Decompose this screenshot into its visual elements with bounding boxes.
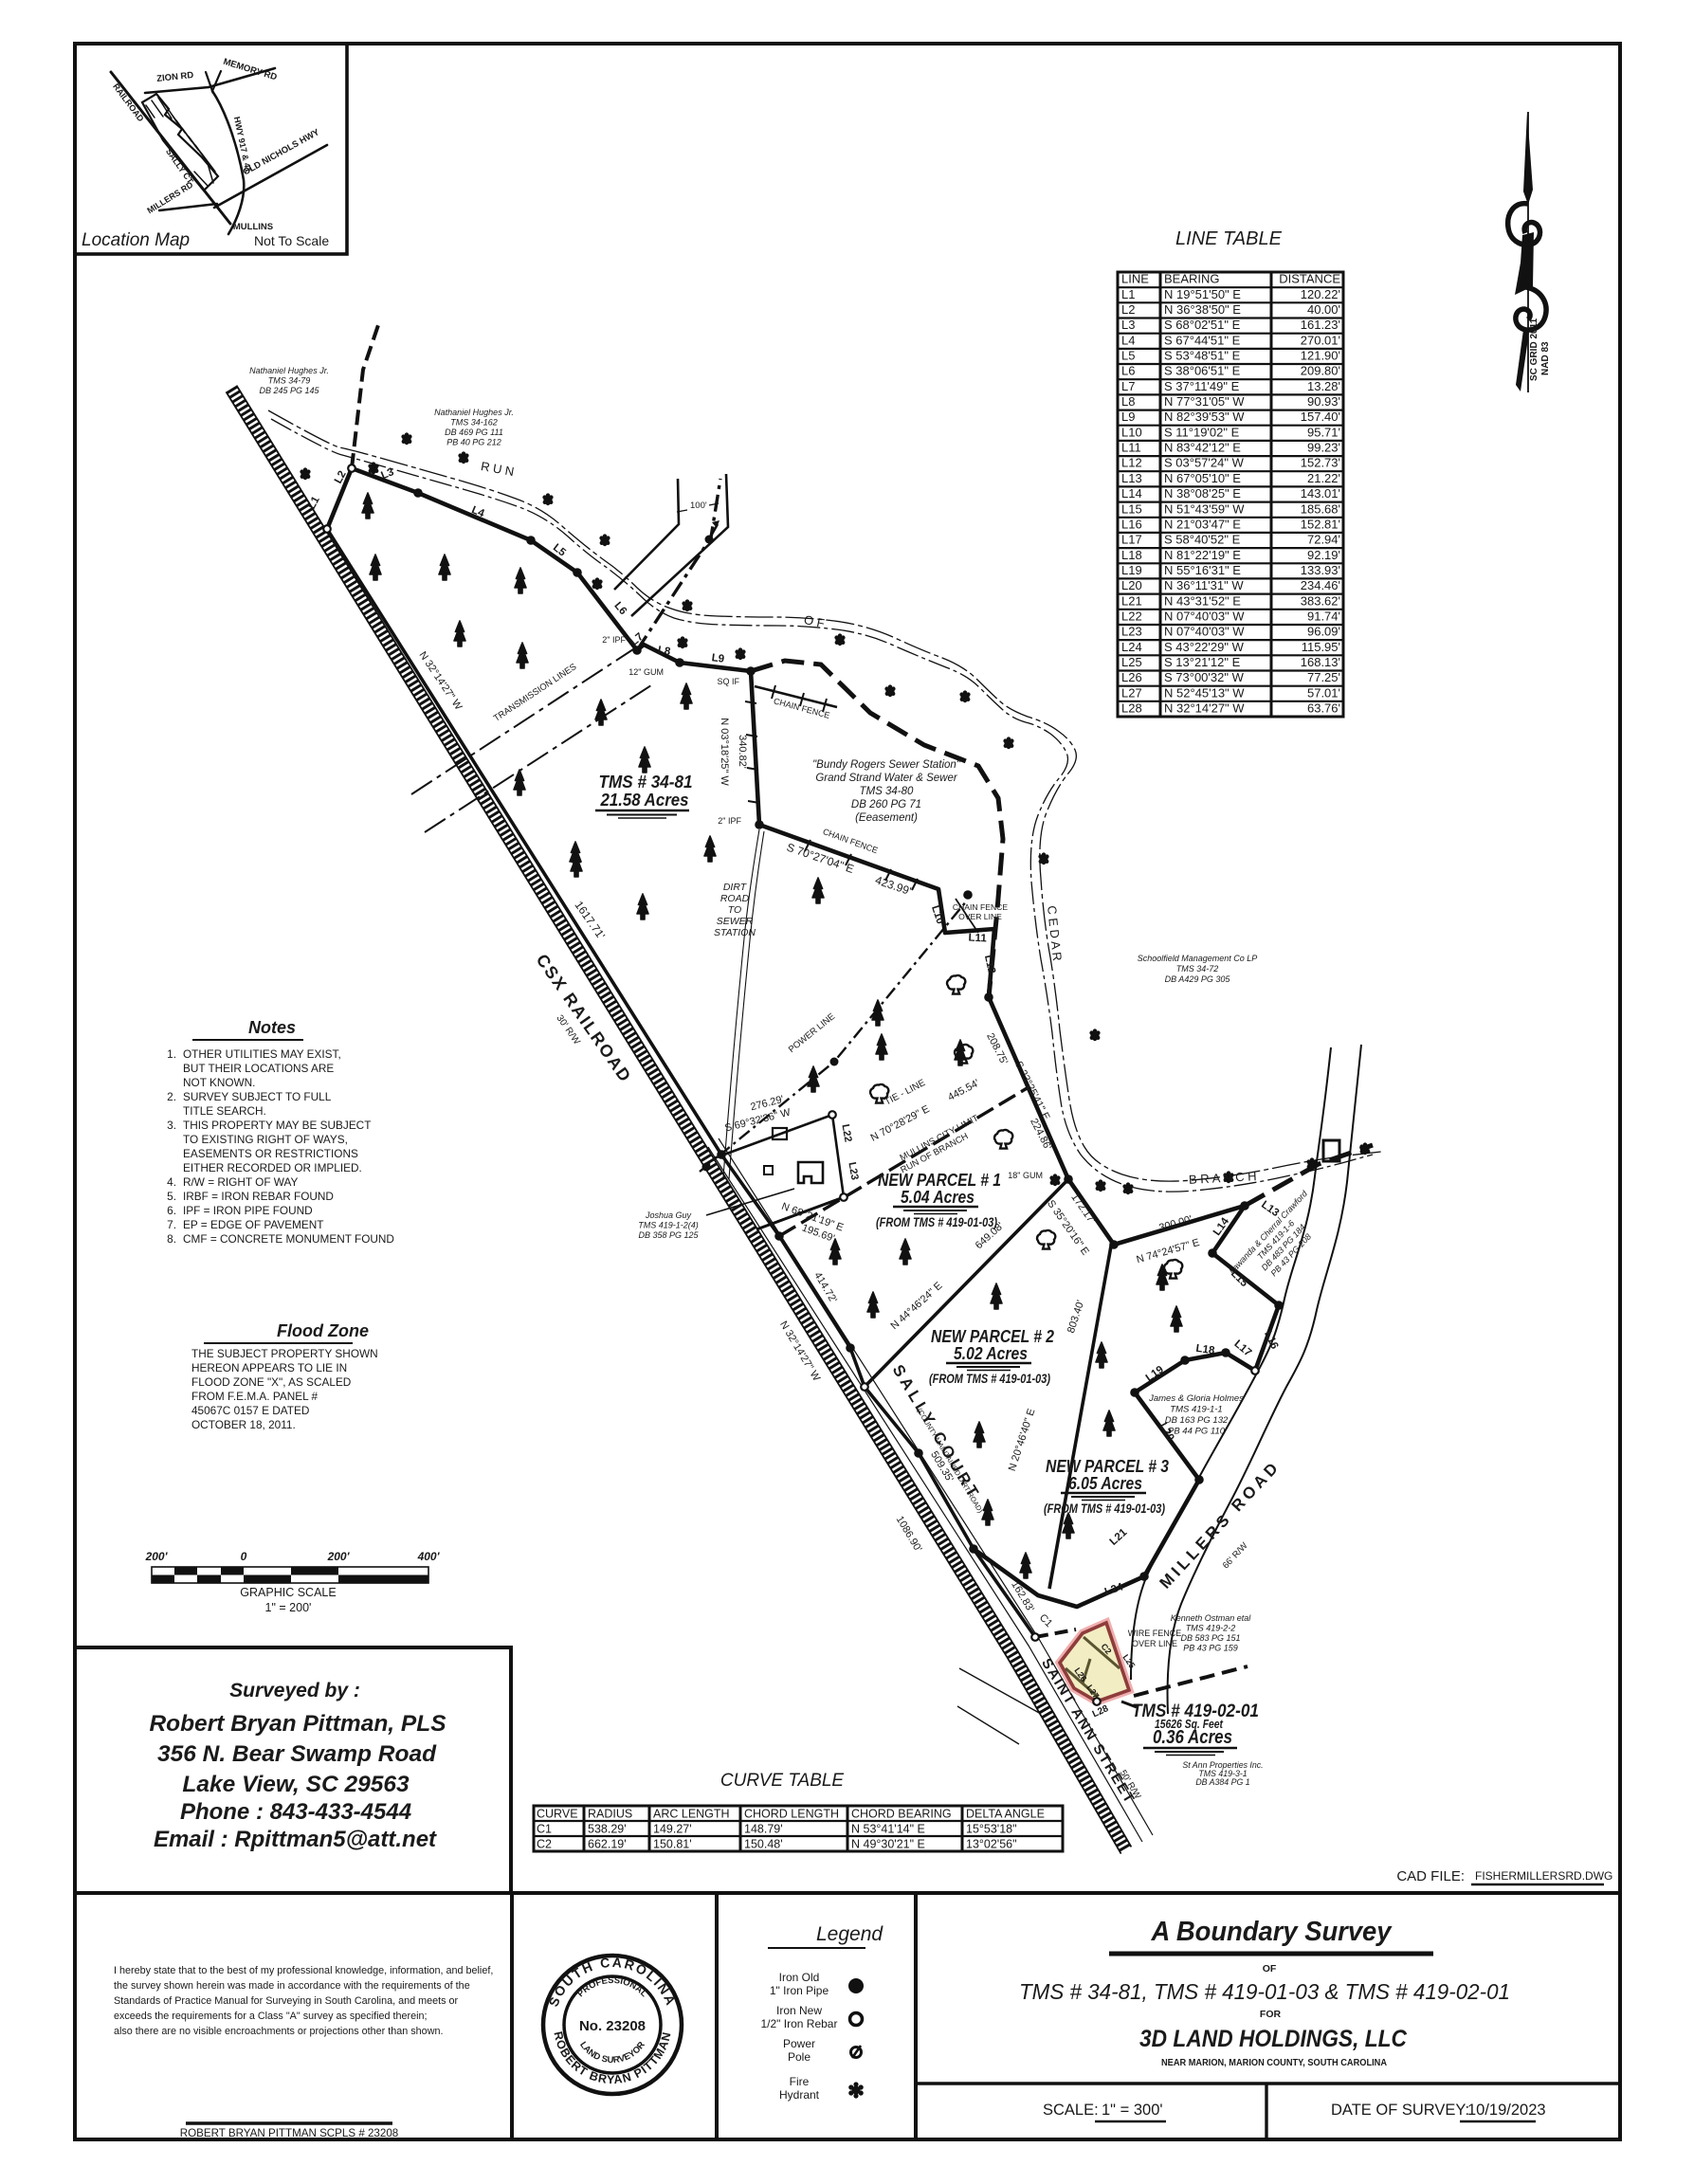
- svg-text:209.80': 209.80': [1301, 364, 1340, 378]
- svg-text:N 07°40'03" W: N 07°40'03" W: [1164, 625, 1245, 639]
- svg-text:MULLINS: MULLINS: [233, 222, 273, 232]
- svg-text:Power: Power: [783, 2037, 815, 2050]
- svg-text:CMF = CONCRETE MONUMENT FOUND: CMF = CONCRETE MONUMENT FOUND: [183, 1232, 394, 1246]
- svg-text:21.58 Acres: 21.58 Acres: [600, 790, 689, 810]
- svg-text:SURVEY SUBJECT TO FULL: SURVEY SUBJECT TO FULL: [183, 1090, 332, 1103]
- svg-text:45067C 0157 E DATED: 45067C 0157 E DATED: [191, 1404, 309, 1417]
- svg-text:Phone : 843-433-4544: Phone : 843-433-4544: [180, 1799, 411, 1825]
- svg-text:3D LAND HOLDINGS, LLC: 3D LAND HOLDINGS, LLC: [1139, 2026, 1408, 2052]
- svg-text:I hereby state that to the bes: I hereby state that to the best of my pr…: [114, 1965, 493, 1976]
- svg-text:SCALE:: SCALE:: [1043, 2102, 1099, 2119]
- svg-text:(Eeasement): (Eeasement): [855, 812, 918, 824]
- svg-text:Grand Strand Water & Sewer: Grand Strand Water & Sewer: [815, 773, 958, 784]
- svg-text:Joshua Guy: Joshua Guy: [645, 1210, 692, 1220]
- svg-text:Not To Scale: Not To Scale: [254, 233, 329, 248]
- svg-text:1" = 200': 1" = 200': [265, 1601, 312, 1614]
- svg-text:DB 583 PG 151: DB 583 PG 151: [1180, 1633, 1240, 1643]
- svg-text:18" GUM: 18" GUM: [1008, 1171, 1043, 1180]
- svg-text:2.: 2.: [167, 1090, 176, 1103]
- svg-text:SEWER: SEWER: [717, 916, 754, 927]
- svg-text:143.01': 143.01': [1301, 486, 1340, 500]
- svg-text:538.29': 538.29': [588, 1823, 627, 1836]
- svg-text:L24: L24: [1121, 640, 1142, 654]
- svg-text:8.: 8.: [167, 1232, 176, 1246]
- svg-text:TO EXISTING RIGHT OF WAYS,: TO EXISTING RIGHT OF WAYS,: [183, 1133, 348, 1146]
- svg-text:PB 44 PG 110: PB 44 PG 110: [1168, 1427, 1226, 1437]
- svg-text:S 37°11'49" E: S 37°11'49" E: [1164, 379, 1240, 393]
- svg-text:LINE: LINE: [1121, 272, 1149, 286]
- svg-text:234.46': 234.46': [1301, 578, 1340, 592]
- svg-text:N 49°30'21" E: N 49°30'21" E: [851, 1838, 925, 1851]
- svg-text:No. 23208: No. 23208: [579, 2018, 646, 2034]
- svg-text:57.01': 57.01': [1307, 685, 1340, 700]
- svg-text:N 81°22'19" E: N 81°22'19" E: [1164, 548, 1241, 562]
- svg-text:185.68': 185.68': [1301, 501, 1340, 516]
- svg-text:Lake View, SC 29563: Lake View, SC 29563: [182, 1772, 410, 1797]
- svg-text:S 73°00'32" W: S 73°00'32" W: [1164, 670, 1245, 684]
- svg-text:L7: L7: [1121, 379, 1135, 393]
- svg-text:FLOOD ZONE "X", AS SCALED: FLOOD ZONE "X", AS SCALED: [191, 1375, 351, 1389]
- svg-text:Fire: Fire: [790, 2075, 810, 2088]
- svg-text:150.48': 150.48': [744, 1838, 783, 1851]
- svg-text:CURVE: CURVE: [537, 1808, 578, 1821]
- svg-text:James & Gloria Holmes: James & Gloria Holmes: [1148, 1393, 1244, 1404]
- svg-text:200': 200': [145, 1550, 169, 1563]
- svg-text:BEARING: BEARING: [1164, 272, 1220, 286]
- svg-text:(FROM TMS # 419-01-03): (FROM TMS # 419-01-03): [876, 1214, 997, 1229]
- svg-text:Nathaniel Hughes Jr.: Nathaniel Hughes Jr.: [434, 408, 514, 417]
- svg-text:L9: L9: [1121, 409, 1135, 424]
- svg-text:161.23': 161.23': [1301, 318, 1340, 332]
- svg-text:N 43°31'52" E: N 43°31'52" E: [1164, 593, 1241, 608]
- svg-text:CHORD LENGTH: CHORD LENGTH: [744, 1808, 839, 1821]
- svg-text:L10: L10: [1121, 425, 1142, 439]
- svg-text:ROBERT BRYAN PITTMAN SCPLS # 2: ROBERT BRYAN PITTMAN SCPLS # 23208: [180, 2127, 398, 2139]
- svg-text:CHORD BEARING: CHORD BEARING: [851, 1808, 952, 1821]
- svg-text:L13: L13: [1121, 471, 1142, 485]
- svg-text:0: 0: [241, 1550, 247, 1563]
- svg-text:12" GUM: 12" GUM: [628, 667, 664, 677]
- svg-text:CAD FILE:: CAD FILE:: [1396, 1868, 1465, 1884]
- svg-text:TMS 419-1-2(4): TMS 419-1-2(4): [638, 1221, 699, 1230]
- svg-text:DB 469 PG 111: DB 469 PG 111: [445, 428, 503, 437]
- svg-text:168.13': 168.13': [1301, 655, 1340, 669]
- svg-text:exceeds the requirements for a: exceeds the requirements for a Class "A"…: [114, 2011, 428, 2022]
- svg-text:4.: 4.: [167, 1175, 176, 1189]
- svg-text:10/19/2023: 10/19/2023: [1467, 2102, 1546, 2119]
- svg-text:DB 163 PG 132: DB 163 PG 132: [1165, 1415, 1229, 1426]
- svg-text:N 36°11'31" W: N 36°11'31" W: [1164, 578, 1244, 592]
- svg-text:TMS 419-1-1: TMS 419-1-1: [1170, 1405, 1222, 1415]
- svg-text:the survey shown herein was ma: the survey shown herein was made in acco…: [114, 1980, 470, 1992]
- svg-text:63.76': 63.76': [1307, 701, 1340, 716]
- svg-text:L28: L28: [1121, 701, 1142, 716]
- svg-text:Robert Bryan Pittman, PLS: Robert Bryan Pittman, PLS: [149, 1711, 446, 1737]
- svg-text:C1: C1: [537, 1823, 552, 1836]
- svg-text:N 52°45'13" W: N 52°45'13" W: [1164, 685, 1245, 700]
- svg-text:L5: L5: [1121, 349, 1135, 363]
- svg-text:Standards of Practice Manual f: Standards of Practice Manual for Surveyi…: [114, 1995, 458, 2007]
- svg-text:6.05 Acres: 6.05 Acres: [1068, 1473, 1142, 1493]
- svg-text:ARC LENGTH: ARC LENGTH: [653, 1808, 730, 1821]
- svg-text:FOR: FOR: [1260, 2009, 1282, 2020]
- svg-text:13°02'56": 13°02'56": [966, 1838, 1017, 1851]
- svg-text:CURVE TABLE: CURVE TABLE: [720, 1771, 845, 1791]
- svg-text:DELTA ANGLE: DELTA ANGLE: [966, 1808, 1045, 1821]
- svg-text:152.73': 152.73': [1301, 456, 1340, 470]
- svg-text:Nathaniel Hughes Jr.: Nathaniel Hughes Jr.: [249, 366, 329, 375]
- svg-text:S 43°22'29" W: S 43°22'29" W: [1164, 640, 1245, 654]
- svg-text:L8: L8: [1121, 394, 1135, 409]
- svg-text:DIRT: DIRT: [723, 882, 748, 893]
- svg-text:PB 43 PG 159: PB 43 PG 159: [1183, 1644, 1238, 1653]
- svg-text:TMS 34-79: TMS 34-79: [268, 376, 311, 386]
- svg-text:N 67°05'10" E: N 67°05'10" E: [1164, 471, 1241, 485]
- svg-text:L12: L12: [1121, 456, 1142, 470]
- svg-text:DB 358 PG 125: DB 358 PG 125: [638, 1230, 699, 1240]
- svg-text:Email : Rpittman5@att.net: Email : Rpittman5@att.net: [154, 1827, 437, 1852]
- svg-text:L20: L20: [1121, 578, 1142, 592]
- svg-text:EASEMENTS OR RESTRICTIONS: EASEMENTS OR RESTRICTIONS: [183, 1147, 358, 1160]
- svg-text:S 11°19'02" E: S 11°19'02" E: [1164, 425, 1240, 439]
- svg-text:also there are no visible encr: also there are no visible encroachments …: [114, 2026, 444, 2037]
- svg-text:L23: L23: [1121, 625, 1142, 639]
- svg-text:40.00': 40.00': [1307, 302, 1340, 317]
- svg-text:95.71': 95.71': [1307, 425, 1340, 439]
- svg-text:N 53°41'14" E: N 53°41'14" E: [851, 1823, 925, 1836]
- svg-text:5.02 Acres: 5.02 Acres: [954, 1343, 1028, 1363]
- svg-text:L8: L8: [657, 645, 672, 658]
- svg-text:0.36 Acres: 0.36 Acres: [1153, 1727, 1232, 1748]
- svg-text:N 32°14'27" W: N 32°14'27" W: [1164, 701, 1245, 716]
- svg-text:Kenneth Ostman etal: Kenneth Ostman etal: [1171, 1613, 1252, 1623]
- svg-text:TO: TO: [728, 904, 741, 916]
- svg-text:RADIUS: RADIUS: [588, 1808, 632, 1821]
- svg-text:HEREON APPEARS TO LIE IN: HEREON APPEARS TO LIE IN: [191, 1361, 347, 1374]
- svg-text:1.: 1.: [167, 1047, 176, 1061]
- svg-text:L3: L3: [1121, 318, 1135, 332]
- svg-text:TMS 419-2-2: TMS 419-2-2: [1186, 1624, 1236, 1633]
- svg-text:Location Map: Location Map: [82, 230, 190, 250]
- svg-text:5.: 5.: [167, 1190, 176, 1203]
- svg-text:133.93': 133.93': [1301, 563, 1340, 577]
- svg-text:S 38°06'51" E: S 38°06'51" E: [1164, 364, 1241, 378]
- svg-text:WIRE FENCE: WIRE FENCE: [1128, 1629, 1182, 1638]
- svg-text:L19: L19: [1121, 563, 1142, 577]
- svg-text:FROM F.E.M.A. PANEL #: FROM F.E.M.A. PANEL #: [191, 1390, 319, 1403]
- svg-text:15°53'18": 15°53'18": [966, 1823, 1017, 1836]
- svg-text:DISTANCE: DISTANCE: [1279, 272, 1340, 286]
- svg-text:2" IPF: 2" IPF: [718, 816, 741, 826]
- svg-text:OCTOBER 18, 2011.: OCTOBER 18, 2011.: [191, 1418, 296, 1431]
- svg-text:3.: 3.: [167, 1119, 176, 1132]
- svg-text:(FROM TMS # 419-01-03): (FROM TMS # 419-01-03): [929, 1371, 1050, 1386]
- svg-text:121.90': 121.90': [1301, 349, 1340, 363]
- svg-text:TMS 34-72: TMS 34-72: [1176, 964, 1219, 974]
- svg-text:THIS PROPERTY MAY BE SUBJECT: THIS PROPERTY MAY BE SUBJECT: [183, 1119, 371, 1132]
- svg-text:Notes: Notes: [248, 1018, 296, 1037]
- svg-text:L17: L17: [1121, 533, 1142, 547]
- svg-text:152.81': 152.81': [1301, 517, 1340, 531]
- svg-text:2" IPF: 2" IPF: [602, 635, 626, 645]
- svg-text:S 58°40'52" E: S 58°40'52" E: [1164, 533, 1241, 547]
- svg-text:S 68°02'51" E: S 68°02'51" E: [1164, 318, 1241, 332]
- svg-text:DB A429 PG 305: DB A429 PG 305: [1165, 974, 1231, 984]
- svg-text:EP = EDGE OF PAVEMENT: EP = EDGE OF PAVEMENT: [183, 1218, 323, 1231]
- svg-text:96.09': 96.09': [1307, 625, 1340, 639]
- svg-text:N 51°43'59" W: N 51°43'59" W: [1164, 501, 1245, 516]
- svg-text:OF: OF: [1263, 1963, 1277, 1975]
- svg-text:400': 400': [417, 1550, 441, 1563]
- svg-text:7.: 7.: [167, 1218, 176, 1231]
- svg-text:L6: L6: [1121, 364, 1135, 378]
- svg-text:S 67°44'51" E: S 67°44'51" E: [1164, 333, 1241, 347]
- svg-text:FISHERMILLERSRD.DWG: FISHERMILLERSRD.DWG: [1475, 1869, 1612, 1883]
- svg-text:STATION: STATION: [714, 927, 756, 938]
- svg-text:90.93': 90.93': [1307, 394, 1340, 409]
- svg-text:157.40': 157.40': [1301, 409, 1340, 424]
- svg-text:Hydrant: Hydrant: [779, 2088, 820, 2102]
- svg-text:149.27': 149.27': [653, 1823, 692, 1836]
- svg-text:6.: 6.: [167, 1204, 176, 1217]
- svg-text:L21: L21: [1121, 593, 1142, 608]
- svg-text:L4: L4: [1121, 333, 1135, 347]
- svg-text:TMS # 34-81: TMS # 34-81: [599, 772, 693, 792]
- svg-text:1/2" Iron Rebar: 1/2" Iron Rebar: [761, 2017, 838, 2030]
- svg-text:N 21°03'47" E: N 21°03'47" E: [1164, 517, 1241, 531]
- svg-text:13.28': 13.28': [1307, 379, 1340, 393]
- svg-text:GRAPHIC SCALE: GRAPHIC SCALE: [240, 1586, 336, 1599]
- svg-text:270.01': 270.01': [1301, 333, 1340, 347]
- svg-text:THE SUBJECT PROPERTY SHOWN: THE SUBJECT PROPERTY SHOWN: [191, 1347, 378, 1360]
- svg-text:5.04 Acres: 5.04 Acres: [901, 1187, 975, 1207]
- svg-text:N 38°08'25" E: N 38°08'25" E: [1164, 486, 1241, 500]
- svg-text:L11: L11: [1121, 441, 1141, 455]
- svg-text:PB 40 PG 212: PB 40 PG 212: [446, 438, 501, 447]
- svg-text:Surveyed by :: Surveyed by :: [229, 1680, 360, 1702]
- svg-text:N 36°38'50" E: N 36°38'50" E: [1164, 302, 1241, 317]
- svg-text:OTHER UTILITIES MAY EXIST,: OTHER UTILITIES MAY EXIST,: [183, 1047, 341, 1061]
- svg-text:77.25': 77.25': [1307, 670, 1340, 684]
- svg-text:148.79': 148.79': [744, 1823, 783, 1836]
- svg-text:SQ IF: SQ IF: [717, 677, 739, 686]
- svg-text:IRBF = IRON REBAR FOUND: IRBF = IRON REBAR FOUND: [183, 1190, 334, 1203]
- svg-text:120.22': 120.22': [1301, 287, 1340, 301]
- svg-text:L27: L27: [1121, 685, 1142, 700]
- svg-text:N 83°42'12" E: N 83°42'12" E: [1164, 441, 1241, 455]
- svg-text:72.94': 72.94': [1307, 533, 1340, 547]
- svg-text:L9: L9: [711, 652, 725, 665]
- svg-text:NEAR MARION, MARION COUNTY, SO: NEAR MARION, MARION COUNTY, SOUTH CAROLI…: [1161, 2057, 1387, 2068]
- svg-text:91.74': 91.74': [1307, 610, 1340, 624]
- svg-text:DB 245 PG 145: DB 245 PG 145: [259, 386, 319, 395]
- svg-text:Pole: Pole: [788, 2050, 811, 2064]
- svg-text:LINE TABLE: LINE TABLE: [1175, 228, 1283, 249]
- svg-text:Flood Zone: Flood Zone: [277, 1321, 369, 1340]
- svg-text:N 77°31'05" W: N 77°31'05" W: [1164, 394, 1245, 409]
- svg-text:N 55°16'31" E: N 55°16'31" E: [1164, 563, 1241, 577]
- svg-text:N 19°51'50" E: N 19°51'50" E: [1164, 287, 1241, 301]
- svg-text:C2: C2: [537, 1838, 552, 1851]
- svg-text:OVER LINE: OVER LINE: [1132, 1639, 1177, 1648]
- svg-text:A Boundary Survey: A Boundary Survey: [1151, 1917, 1393, 1947]
- svg-text:DATE OF SURVEY:: DATE OF SURVEY:: [1331, 2102, 1469, 2119]
- svg-text:L1: L1: [1121, 287, 1135, 301]
- svg-text:Legend: Legend: [816, 1923, 883, 1945]
- svg-text:L18: L18: [1121, 548, 1142, 562]
- svg-text:L14: L14: [1121, 486, 1142, 500]
- svg-text:TITLE SEARCH.: TITLE SEARCH.: [183, 1104, 266, 1118]
- svg-text:"Bundy Rogers Sewer Station": "Bundy Rogers Sewer Station": [812, 759, 961, 771]
- svg-text:S 53°48'51" E: S 53°48'51" E: [1164, 349, 1241, 363]
- svg-text:SC GRID 2011: SC GRID 2011: [1529, 318, 1539, 381]
- svg-text:662.19': 662.19': [588, 1838, 627, 1851]
- svg-text:EITHER RECORDED OR IMPLIED.: EITHER RECORDED OR IMPLIED.: [183, 1161, 362, 1174]
- svg-text:ROAD: ROAD: [720, 893, 750, 904]
- svg-text:N 03°18'25" W: N 03°18'25" W: [719, 718, 730, 786]
- svg-text:21.22': 21.22': [1307, 471, 1340, 485]
- svg-text:L2: L2: [1121, 302, 1135, 317]
- svg-text:200': 200': [327, 1550, 351, 1563]
- svg-text:R/W = RIGHT OF WAY: R/W = RIGHT OF WAY: [183, 1175, 298, 1189]
- svg-text:L16: L16: [1121, 517, 1142, 531]
- svg-text:N 82°39'53" W: N 82°39'53" W: [1164, 409, 1245, 424]
- svg-text:L22: L22: [1121, 610, 1142, 624]
- svg-text:L25: L25: [1121, 655, 1142, 669]
- svg-text:356 N. Bear Swamp Road: 356 N. Bear Swamp Road: [157, 1741, 437, 1767]
- svg-text:Schoolfield Management Co LP: Schoolfield Management Co LP: [1138, 954, 1258, 963]
- svg-text:N 07°40'03" W: N 07°40'03" W: [1164, 610, 1245, 624]
- svg-text:TMS 34-162: TMS 34-162: [450, 418, 498, 428]
- svg-text:115.95': 115.95': [1302, 640, 1340, 654]
- svg-text:NAD 83: NAD 83: [1540, 341, 1551, 375]
- svg-text:DB 260 PG 71: DB 260 PG 71: [851, 799, 921, 810]
- svg-text:TMS 34-80: TMS 34-80: [860, 786, 914, 797]
- svg-text:S 03°57'24" W: S 03°57'24" W: [1164, 456, 1245, 470]
- svg-text:150.81': 150.81': [653, 1838, 692, 1851]
- svg-text:S 13°21'12" E: S 13°21'12" E: [1164, 655, 1241, 669]
- svg-text:92.19': 92.19': [1307, 548, 1340, 562]
- svg-text:NOT KNOWN.: NOT KNOWN.: [183, 1076, 255, 1089]
- svg-text:Iron New: Iron New: [776, 2004, 822, 2017]
- svg-text:L11: L11: [968, 933, 987, 945]
- svg-text:340.82': 340.82': [737, 735, 748, 769]
- svg-text:100': 100': [690, 500, 707, 511]
- svg-text:L15: L15: [1121, 501, 1142, 516]
- svg-text:1" = 300': 1" = 300': [1102, 2102, 1163, 2119]
- svg-text:383.62': 383.62': [1301, 593, 1340, 608]
- svg-text:L26: L26: [1121, 670, 1142, 684]
- svg-text:IPF = IRON PIPE FOUND: IPF = IRON PIPE FOUND: [183, 1204, 313, 1217]
- svg-text:99.23': 99.23': [1307, 441, 1340, 455]
- svg-text:(FROM TMS # 419-01-03): (FROM TMS # 419-01-03): [1044, 1501, 1165, 1516]
- svg-text:TMS # 34-81, TMS # 419-01-03 &: TMS # 34-81, TMS # 419-01-03 & TMS # 419…: [1019, 1979, 1510, 2004]
- svg-text:Iron Old: Iron Old: [779, 1971, 820, 1984]
- svg-text:DB A384 PG 1: DB A384 PG 1: [1195, 1777, 1249, 1787]
- svg-text:1" Iron Pipe: 1" Iron Pipe: [770, 1984, 829, 1997]
- svg-text:BUT THEIR LOCATIONS ARE: BUT THEIR LOCATIONS ARE: [183, 1062, 334, 1075]
